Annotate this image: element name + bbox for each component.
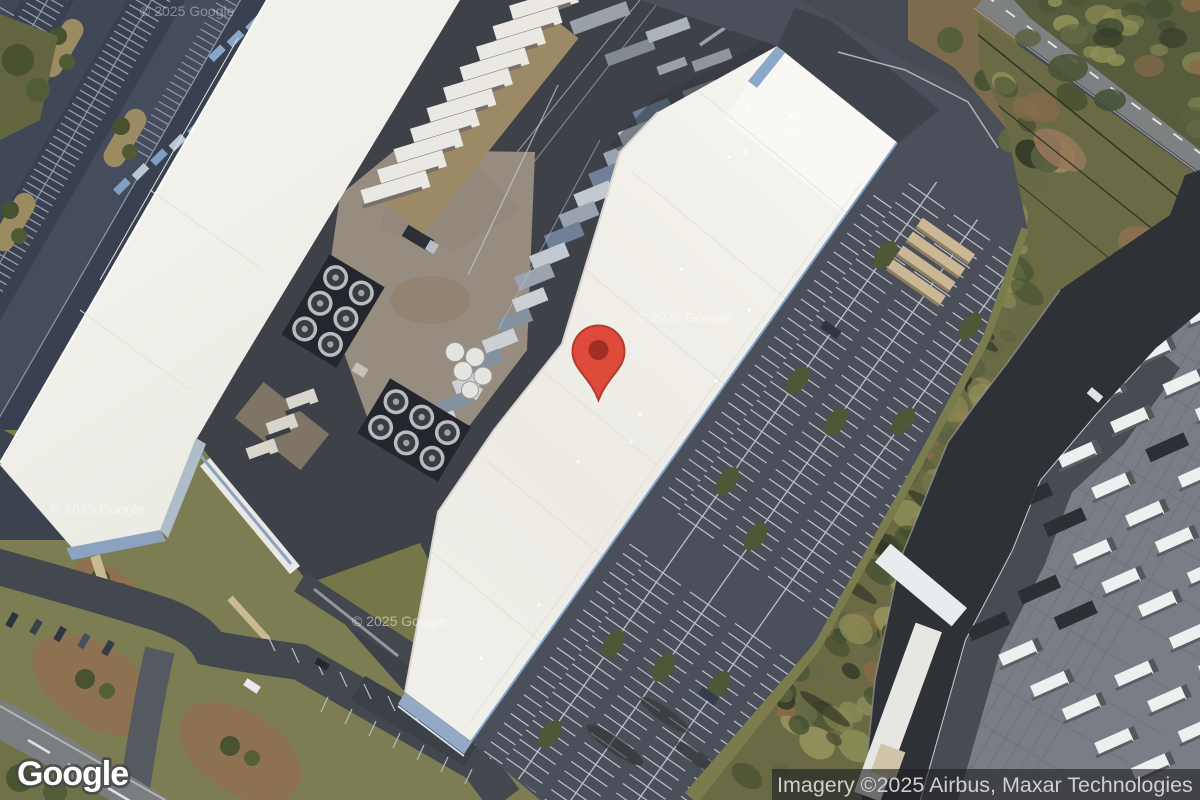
svg-text:Google: Google [17,755,128,793]
svg-text:© 2025 Google: © 2025 Google [636,309,731,325]
svg-text:© 2025 Google: © 2025 Google [140,3,235,19]
svg-text:© 2025 Google: © 2025 Google [352,613,447,629]
svg-text:© 2025 Google: © 2025 Google [50,501,145,517]
svg-text:Imagery ©2025 Airbus, Maxar Te: Imagery ©2025 Airbus, Maxar Technologies [777,773,1193,797]
